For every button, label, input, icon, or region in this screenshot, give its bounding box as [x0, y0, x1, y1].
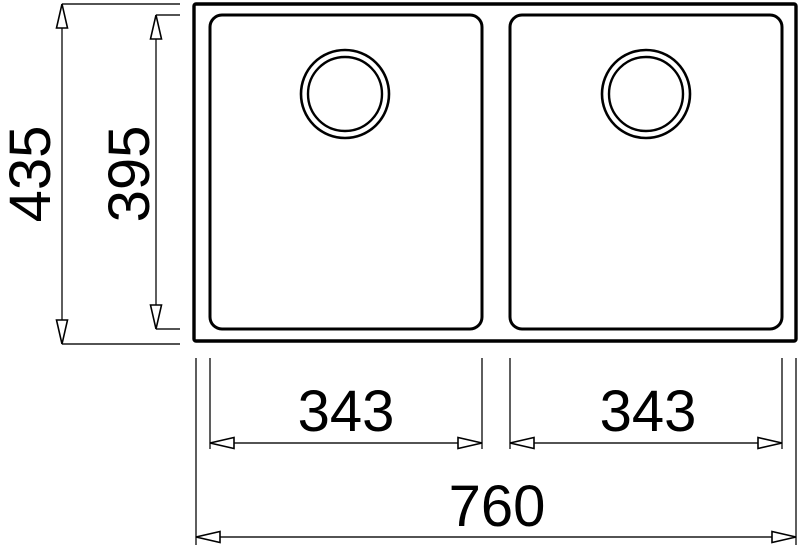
arrow-right-343-left	[458, 438, 482, 449]
right-drain-outer-circle	[602, 50, 690, 138]
arrow-up-395	[151, 15, 162, 39]
extension-lines	[62, 4, 796, 545]
dim-label-left-bowl-width: 343	[298, 379, 395, 444]
arrow-right-343-right	[758, 438, 782, 449]
arrow-left-760	[196, 532, 220, 543]
arrow-left-343-right	[510, 438, 534, 449]
arrow-right-760	[772, 532, 796, 543]
arrow-down-435	[57, 320, 68, 344]
right-drain-inner-circle	[609, 57, 683, 131]
dim-label-overall-width: 760	[449, 474, 546, 539]
drawing-canvas: 435 395 343 343 760	[0, 0, 800, 556]
arrow-up-435	[57, 4, 68, 28]
left-drain-inner-circle	[308, 57, 382, 131]
right-bowl	[510, 15, 782, 329]
dim-label-overall-height: 435	[0, 126, 63, 223]
left-drain-outer-circle	[301, 50, 389, 138]
dim-label-bowl-depth: 395	[97, 126, 162, 223]
sink-outline-group	[194, 4, 796, 341]
sink-outer-rim	[194, 4, 796, 341]
dimension-lines	[62, 4, 796, 537]
sink-technical-drawing: 435 395 343 343 760	[0, 0, 800, 556]
dimension-arrowheads	[57, 4, 797, 543]
dim-label-right-bowl-width: 343	[600, 379, 697, 444]
left-bowl	[210, 15, 482, 329]
arrow-down-395	[151, 305, 162, 329]
arrow-left-343-left	[210, 438, 234, 449]
